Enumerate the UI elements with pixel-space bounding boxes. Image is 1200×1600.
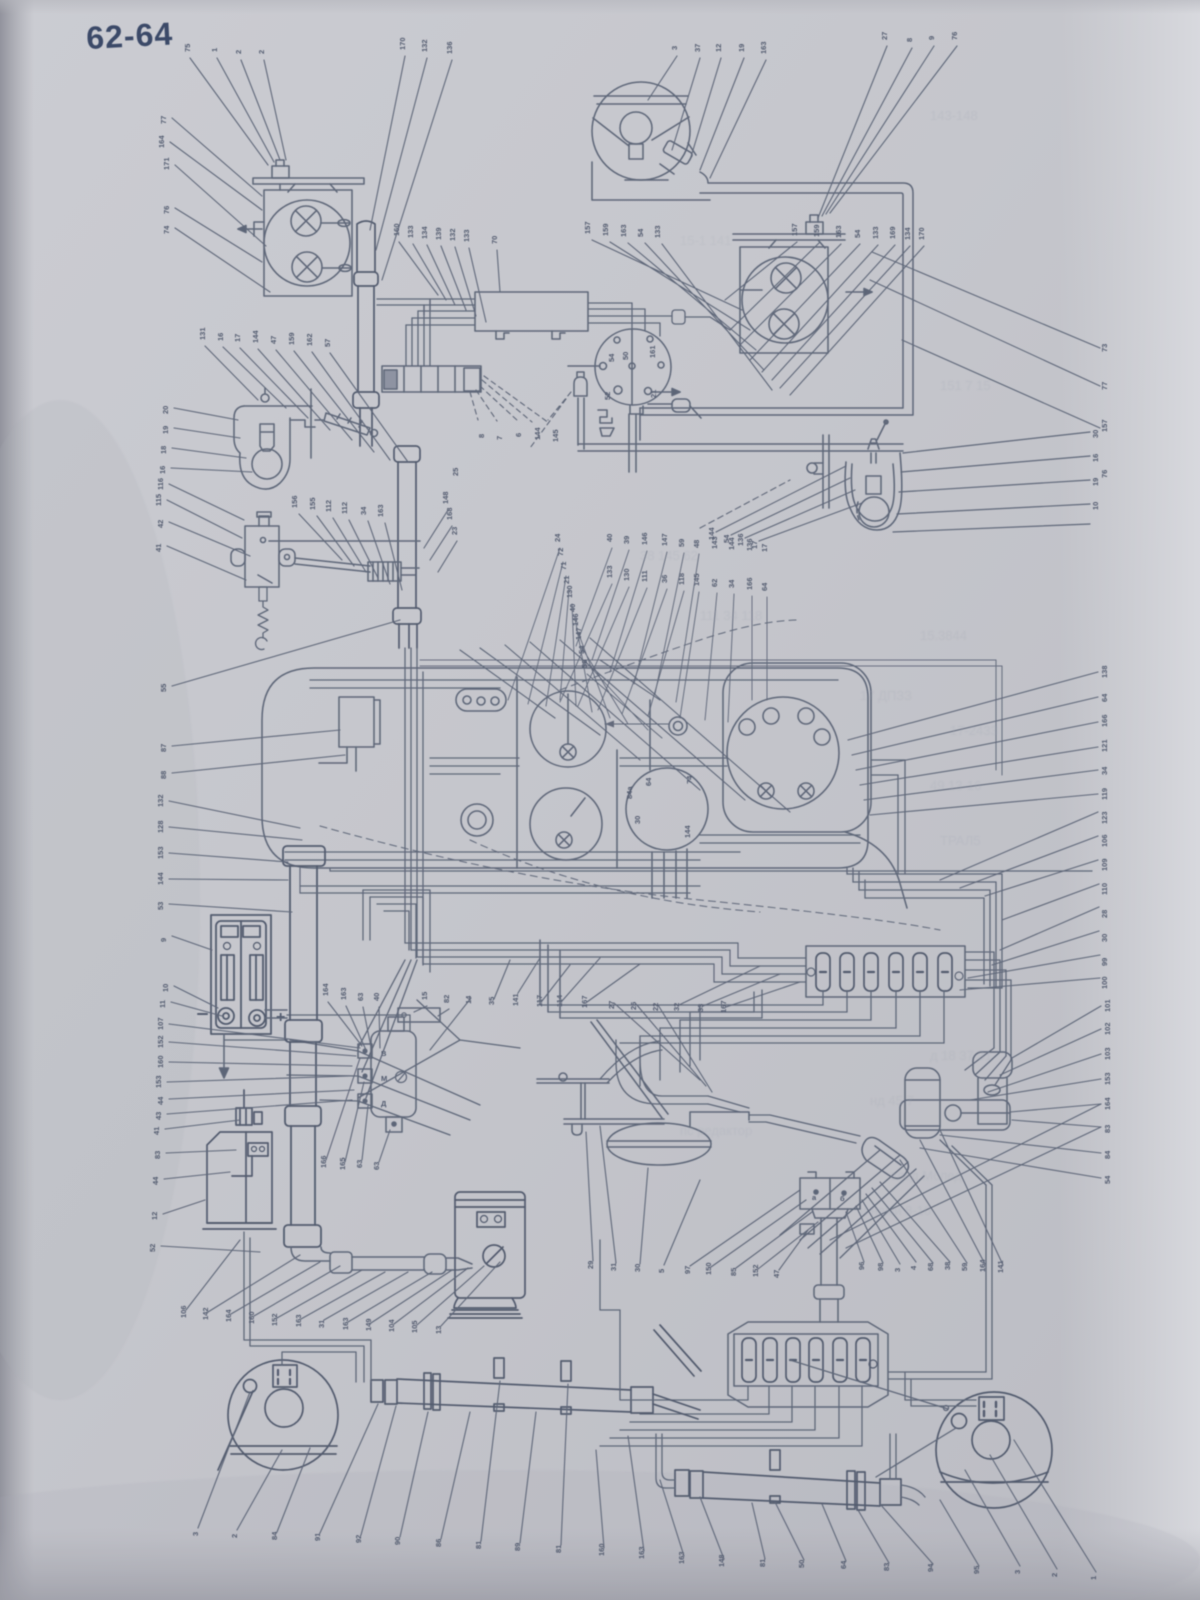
svg-text:160: 160: [597, 1543, 606, 1556]
svg-text:б: б: [840, 1194, 845, 1203]
svg-text:159: 159: [287, 332, 296, 345]
svg-text:62-64: 62-64: [85, 15, 174, 55]
svg-text:110: 110: [1100, 883, 1109, 895]
svg-text:106: 106: [179, 1305, 188, 1318]
svg-text:152: 152: [270, 1313, 279, 1326]
svg-text:102: 102: [1103, 1022, 1112, 1035]
svg-text:171: 171: [162, 157, 171, 170]
svg-text:38: 38: [943, 1262, 952, 1270]
svg-text:169: 169: [888, 226, 897, 239]
svg-text:150: 150: [704, 1262, 713, 1275]
svg-text:107: 107: [156, 1017, 165, 1030]
svg-text:52: 52: [603, 392, 612, 400]
svg-text:84a: 84a: [625, 786, 634, 799]
svg-text:16: 16: [216, 333, 225, 341]
svg-text:149: 149: [364, 1318, 373, 1331]
svg-text:83: 83: [1103, 1125, 1112, 1133]
svg-text:54: 54: [853, 229, 862, 238]
svg-text:134: 134: [420, 226, 429, 239]
svg-text:91: 91: [313, 1533, 322, 1541]
svg-text:112: 112: [324, 500, 333, 512]
svg-text:104: 104: [387, 1319, 396, 1332]
svg-text:нд 45 7: нд 45 7: [870, 1093, 914, 1108]
svg-text:63: 63: [356, 993, 365, 1001]
svg-text:40: 40: [605, 534, 614, 542]
svg-text:144: 144: [727, 537, 736, 550]
svg-text:8: 8: [477, 434, 486, 438]
svg-text:40: 40: [372, 993, 381, 1001]
svg-text:14: 14: [464, 995, 473, 1004]
svg-text:160: 160: [156, 1055, 165, 1068]
svg-text:106: 106: [1100, 834, 1109, 847]
svg-text:163: 163: [376, 504, 385, 517]
svg-text:62: 62: [710, 579, 719, 587]
svg-text:163: 163: [759, 41, 768, 54]
svg-text:73: 73: [1100, 344, 1109, 352]
svg-text:105: 105: [410, 1320, 419, 1333]
svg-text:д 18 37 31: д 18 37 31: [930, 1048, 992, 1063]
svg-text:3: 3: [1013, 1570, 1022, 1574]
svg-text:164: 164: [224, 1309, 233, 1322]
svg-text:101: 101: [1103, 999, 1112, 1012]
svg-text:42: 42: [156, 520, 165, 528]
svg-text:50: 50: [621, 352, 630, 360]
svg-text:131: 131: [198, 327, 207, 340]
svg-text:31: 31: [609, 1263, 618, 1271]
svg-text:90: 90: [393, 1537, 402, 1545]
svg-text:84: 84: [1103, 1150, 1112, 1159]
svg-text:27: 27: [607, 1001, 616, 1009]
svg-text:64: 64: [839, 1560, 848, 1569]
svg-text:132: 132: [420, 39, 429, 52]
svg-text:17: 17: [760, 544, 769, 552]
svg-text:55: 55: [159, 684, 168, 692]
svg-text:87: 87: [159, 744, 168, 752]
svg-text:53: 53: [156, 902, 165, 910]
svg-text:85: 85: [729, 1268, 738, 1276]
svg-text:64: 64: [760, 582, 769, 591]
svg-text:34: 34: [727, 579, 736, 588]
svg-text:136: 136: [445, 41, 454, 54]
svg-text:143-148: 143-148: [930, 108, 978, 123]
svg-text:170: 170: [398, 37, 407, 50]
svg-text:141: 141: [511, 993, 520, 1006]
svg-text:30: 30: [1100, 934, 1109, 942]
svg-text:Д: Д: [381, 1099, 387, 1108]
svg-text:130: 130: [622, 568, 631, 581]
svg-text:12: 12: [150, 1212, 159, 1220]
svg-text:10: 10: [1091, 502, 1100, 510]
svg-text:94: 94: [926, 1563, 935, 1572]
svg-text:97: 97: [683, 1266, 692, 1274]
svg-text:63: 63: [355, 1160, 364, 1168]
svg-text:82: 82: [442, 995, 451, 1003]
svg-text:13: 13: [434, 1326, 443, 1334]
svg-text:121: 121: [1100, 739, 1109, 752]
svg-text:38 145 62: 38 145 62: [640, 548, 698, 563]
svg-text:29: 29: [586, 1261, 595, 1269]
svg-text:83: 83: [153, 1151, 162, 1159]
svg-text:59: 59: [677, 539, 686, 547]
svg-text:54: 54: [1103, 1175, 1112, 1184]
svg-text:138: 138: [1100, 665, 1109, 678]
svg-text:130: 130: [565, 585, 574, 598]
svg-text:133: 133: [406, 225, 415, 238]
svg-text:7: 7: [495, 436, 504, 440]
svg-text:31: 31: [317, 1320, 326, 1328]
svg-text:164: 164: [157, 135, 166, 148]
svg-text:19: 19: [1091, 478, 1100, 486]
svg-text:47: 47: [772, 1270, 781, 1278]
svg-text:54: 54: [636, 228, 645, 237]
svg-text:100: 100: [1100, 976, 1109, 989]
svg-text:88: 88: [159, 771, 168, 779]
svg-text:119: 119: [1100, 788, 1109, 800]
svg-text:50: 50: [797, 1560, 806, 1568]
svg-text:160: 160: [392, 223, 401, 236]
svg-text:15.3844: 15.3844: [920, 628, 967, 643]
svg-text:74: 74: [162, 225, 171, 234]
svg-text:159: 159: [601, 223, 610, 236]
svg-text:34: 34: [359, 506, 368, 515]
svg-text:81: 81: [474, 1541, 483, 1549]
svg-text:3: 3: [670, 46, 679, 50]
svg-text:134: 134: [903, 227, 912, 240]
svg-text:52: 52: [148, 1244, 157, 1252]
svg-text:19: 19: [161, 426, 170, 434]
svg-text:17: 17: [233, 334, 242, 342]
svg-text:166: 166: [745, 577, 754, 590]
svg-text:74: 74: [685, 775, 694, 784]
svg-text:145: 145: [551, 429, 560, 442]
svg-text:84: 84: [270, 1531, 279, 1540]
svg-text:144: 144: [251, 330, 260, 343]
svg-text:6: 6: [514, 433, 523, 437]
svg-text:37: 37: [693, 44, 702, 52]
svg-text:161: 161: [648, 345, 657, 358]
svg-text:75: 75: [183, 44, 192, 52]
svg-text:132: 132: [156, 794, 165, 807]
svg-text:16: 16: [158, 466, 167, 474]
svg-text:96: 96: [857, 1262, 866, 1270]
svg-text:2: 2: [230, 1534, 239, 1538]
svg-text:81: 81: [554, 1545, 563, 1553]
svg-text:70: 70: [490, 236, 499, 244]
svg-text:30: 30: [633, 816, 642, 824]
svg-text:44: 44: [151, 1176, 160, 1185]
svg-text:95: 95: [972, 1566, 981, 1574]
svg-text:111 34 118: 111 34 118: [700, 608, 762, 623]
svg-text:47: 47: [269, 336, 278, 344]
svg-text:163: 163: [677, 1551, 686, 1564]
svg-text:152: 152: [156, 1035, 165, 1048]
svg-text:3: 3: [893, 1268, 902, 1272]
svg-text:77: 77: [159, 116, 168, 124]
svg-text:15-1 141: 15-1 141: [680, 233, 731, 248]
svg-text:25: 25: [451, 468, 460, 476]
svg-text:143: 143: [710, 536, 719, 549]
svg-text:15: 15: [420, 992, 429, 1000]
svg-text:159: 159: [812, 224, 821, 237]
svg-text:9: 9: [927, 36, 936, 40]
svg-text:81: 81: [758, 1559, 767, 1567]
svg-text:142: 142: [201, 1307, 210, 1320]
svg-text:34: 34: [1100, 766, 1109, 775]
svg-text:145: 145: [692, 573, 701, 586]
svg-text:41: 41: [152, 1127, 161, 1135]
svg-text:163: 163: [834, 225, 843, 238]
svg-text:157: 157: [583, 221, 592, 234]
svg-text:76: 76: [162, 206, 171, 214]
svg-text:27: 27: [880, 32, 889, 40]
svg-text:18: 18: [159, 446, 168, 454]
svg-text:132: 132: [448, 228, 457, 241]
svg-text:24: 24: [553, 533, 562, 542]
svg-text:146: 146: [640, 532, 649, 545]
svg-text:141: 141: [996, 1260, 1005, 1273]
svg-text:86: 86: [434, 1539, 443, 1547]
svg-text:170: 170: [917, 227, 926, 240]
svg-text:30: 30: [1091, 430, 1100, 438]
svg-text:76: 76: [1100, 470, 1109, 478]
svg-text:92: 92: [354, 1535, 363, 1543]
svg-text:77: 77: [1100, 382, 1109, 390]
svg-text:19: 19: [737, 44, 746, 52]
svg-text:151 7 15: 151 7 15: [940, 378, 991, 393]
svg-text:123: 123: [1100, 811, 1109, 824]
svg-text:2: 2: [257, 50, 266, 54]
svg-text:152: 152: [751, 1264, 760, 1277]
svg-text:166: 166: [1100, 714, 1109, 727]
svg-text:133: 133: [462, 229, 471, 242]
svg-text:21: 21: [649, 390, 658, 398]
svg-text:111: 111: [640, 570, 649, 582]
svg-text:139: 139: [434, 227, 443, 240]
svg-text:68: 68: [926, 1263, 935, 1271]
svg-text:17-2433: 17-2433: [950, 723, 998, 738]
svg-text:64: 64: [1100, 693, 1109, 702]
svg-text:163: 163: [294, 1314, 303, 1327]
svg-text:64: 64: [644, 777, 653, 786]
svg-text:163: 163: [637, 1546, 646, 1559]
svg-text:1: 1: [210, 48, 219, 52]
svg-text:112: 112: [340, 502, 349, 514]
svg-text:153: 153: [1103, 1072, 1112, 1085]
svg-text:10: 10: [161, 984, 170, 992]
svg-text:30: 30: [633, 1264, 642, 1272]
svg-text:153: 153: [154, 1075, 163, 1088]
svg-text:99: 99: [1100, 958, 1109, 966]
svg-text:1: 1: [1089, 1576, 1098, 1580]
svg-text:83: 83: [882, 1563, 891, 1571]
svg-text:156: 156: [290, 495, 299, 508]
svg-text:3: 3: [191, 1532, 200, 1536]
svg-text:2: 2: [1050, 1573, 1059, 1577]
svg-text:16: 16: [1091, 454, 1100, 462]
svg-text:160: 160: [247, 1311, 256, 1324]
svg-text:153: 153: [156, 846, 165, 859]
svg-text:133: 133: [605, 565, 614, 578]
svg-text:115: 115: [154, 494, 163, 506]
svg-text:164: 164: [978, 1259, 987, 1272]
svg-text:157: 157: [790, 223, 799, 236]
svg-text:136: 136: [736, 533, 745, 546]
svg-text:116: 116: [156, 478, 165, 490]
svg-text:2: 2: [234, 50, 243, 54]
svg-text:71: 71: [559, 562, 568, 570]
svg-text:54: 54: [607, 353, 616, 362]
svg-text:148: 148: [717, 1554, 726, 1567]
svg-text:5: 5: [657, 1269, 666, 1273]
svg-text:28: 28: [1100, 910, 1109, 918]
svg-text:144: 144: [683, 825, 692, 838]
svg-text:89: 89: [513, 1543, 522, 1551]
svg-text:162: 162: [305, 333, 314, 346]
svg-text:43: 43: [154, 1112, 163, 1120]
svg-text:ТРАЛ5: ТРАЛ5: [940, 833, 980, 848]
svg-text:9: 9: [159, 938, 168, 942]
svg-text:164: 164: [1103, 1097, 1112, 1110]
svg-text:148: 148: [441, 491, 450, 504]
svg-text:136: 136: [745, 538, 754, 551]
svg-text:41: 41: [154, 544, 163, 552]
svg-text:109: 109: [1100, 858, 1109, 871]
svg-text:33: 33: [696, 1004, 705, 1012]
svg-text:63: 63: [372, 1162, 381, 1170]
svg-text:98: 98: [876, 1263, 885, 1271]
svg-text:39: 39: [622, 536, 631, 544]
svg-text:44: 44: [156, 1096, 165, 1105]
svg-text:21: 21: [562, 576, 571, 584]
svg-text:164: 164: [321, 983, 330, 996]
svg-text:163: 163: [341, 1317, 350, 1330]
svg-text:пс редактор: пс редактор: [680, 1123, 752, 1138]
svg-text:144: 144: [156, 872, 165, 885]
svg-text:след Мслед: след Мслед: [890, 1168, 962, 1183]
svg-text:133: 133: [653, 225, 662, 238]
svg-text:и нами 8-10: и нами 8-10: [860, 1203, 931, 1218]
svg-text:48: 48: [692, 540, 701, 548]
svg-text:17 ДПЗЗ: 17 ДПЗЗ: [860, 688, 912, 703]
svg-text:133: 133: [871, 226, 880, 239]
svg-text:76: 76: [950, 32, 959, 40]
svg-text:103: 103: [1103, 1047, 1112, 1060]
svg-text:11: 11: [158, 1000, 167, 1008]
svg-text:49 13-16: 49 13-16: [930, 778, 981, 793]
svg-text:147: 147: [660, 533, 669, 546]
svg-text:57: 57: [323, 339, 332, 347]
svg-text:12: 12: [714, 44, 723, 52]
svg-text:157: 157: [1100, 419, 1109, 432]
svg-text:168: 168: [445, 507, 454, 520]
svg-text:20: 20: [161, 406, 170, 414]
svg-text:32: 32: [672, 1003, 681, 1011]
svg-text:163: 163: [619, 224, 628, 237]
svg-text:155: 155: [308, 497, 317, 510]
svg-text:128: 128: [156, 820, 165, 833]
svg-text:163: 163: [339, 987, 348, 1000]
svg-text:8: 8: [905, 38, 914, 42]
svg-text:26: 26: [629, 1002, 638, 1010]
svg-text:59: 59: [960, 1263, 969, 1271]
